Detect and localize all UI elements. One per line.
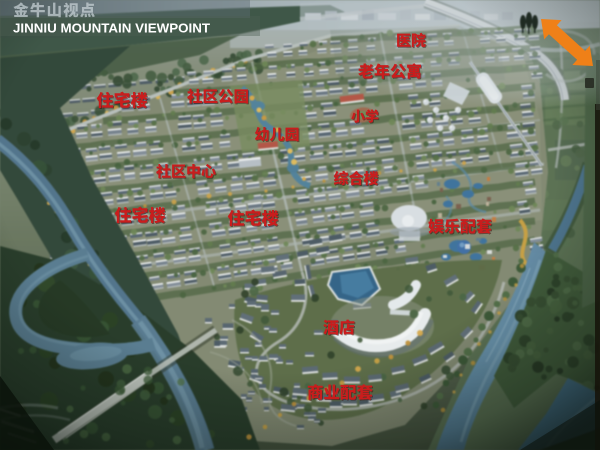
svg-text:JINNIU MOUNTAIN VIEWPOINT: JINNIU MOUNTAIN VIEWPOINT — [13, 21, 210, 36]
